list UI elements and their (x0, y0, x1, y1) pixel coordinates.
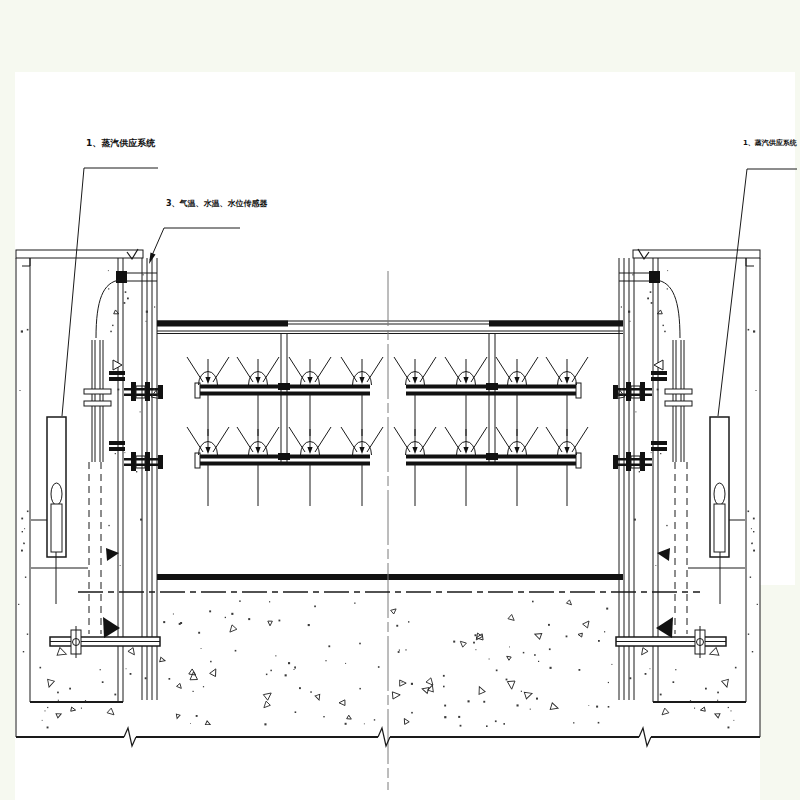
leader-steam-left (62, 168, 84, 416)
break-line (124, 728, 136, 746)
heater-unit (496, 357, 538, 436)
concrete-slab-texture (158, 600, 612, 727)
heater-unit (546, 427, 588, 506)
label-steam-supply-right: 1、蒸汽供应系统 (743, 140, 797, 147)
heater-unit (237, 427, 279, 506)
heater-unit (445, 427, 487, 506)
cad-linework (0, 0, 800, 800)
tank-top-beam (157, 321, 623, 334)
heater-unit (496, 427, 538, 506)
heater-unit (289, 427, 331, 506)
heater-unit (394, 357, 436, 436)
heater-unit (341, 357, 383, 436)
left-pit (16, 249, 163, 737)
heater-unit (237, 357, 279, 436)
heater-unit (394, 427, 436, 506)
heater-unit (341, 427, 383, 506)
heater-unit (445, 357, 487, 436)
break-line (639, 728, 651, 746)
heater-unit (187, 427, 229, 506)
label-steam-supply-left: 1、蒸汽供应系统 (86, 139, 155, 148)
heater-unit (546, 357, 588, 436)
tank-bottom (157, 574, 623, 580)
heater-unit (289, 357, 331, 436)
right-pit (613, 249, 760, 737)
label-sensors: 3、气温、水温、水位传感器 (166, 200, 268, 208)
leader-steam-right (718, 169, 747, 416)
heater-unit (187, 357, 229, 436)
